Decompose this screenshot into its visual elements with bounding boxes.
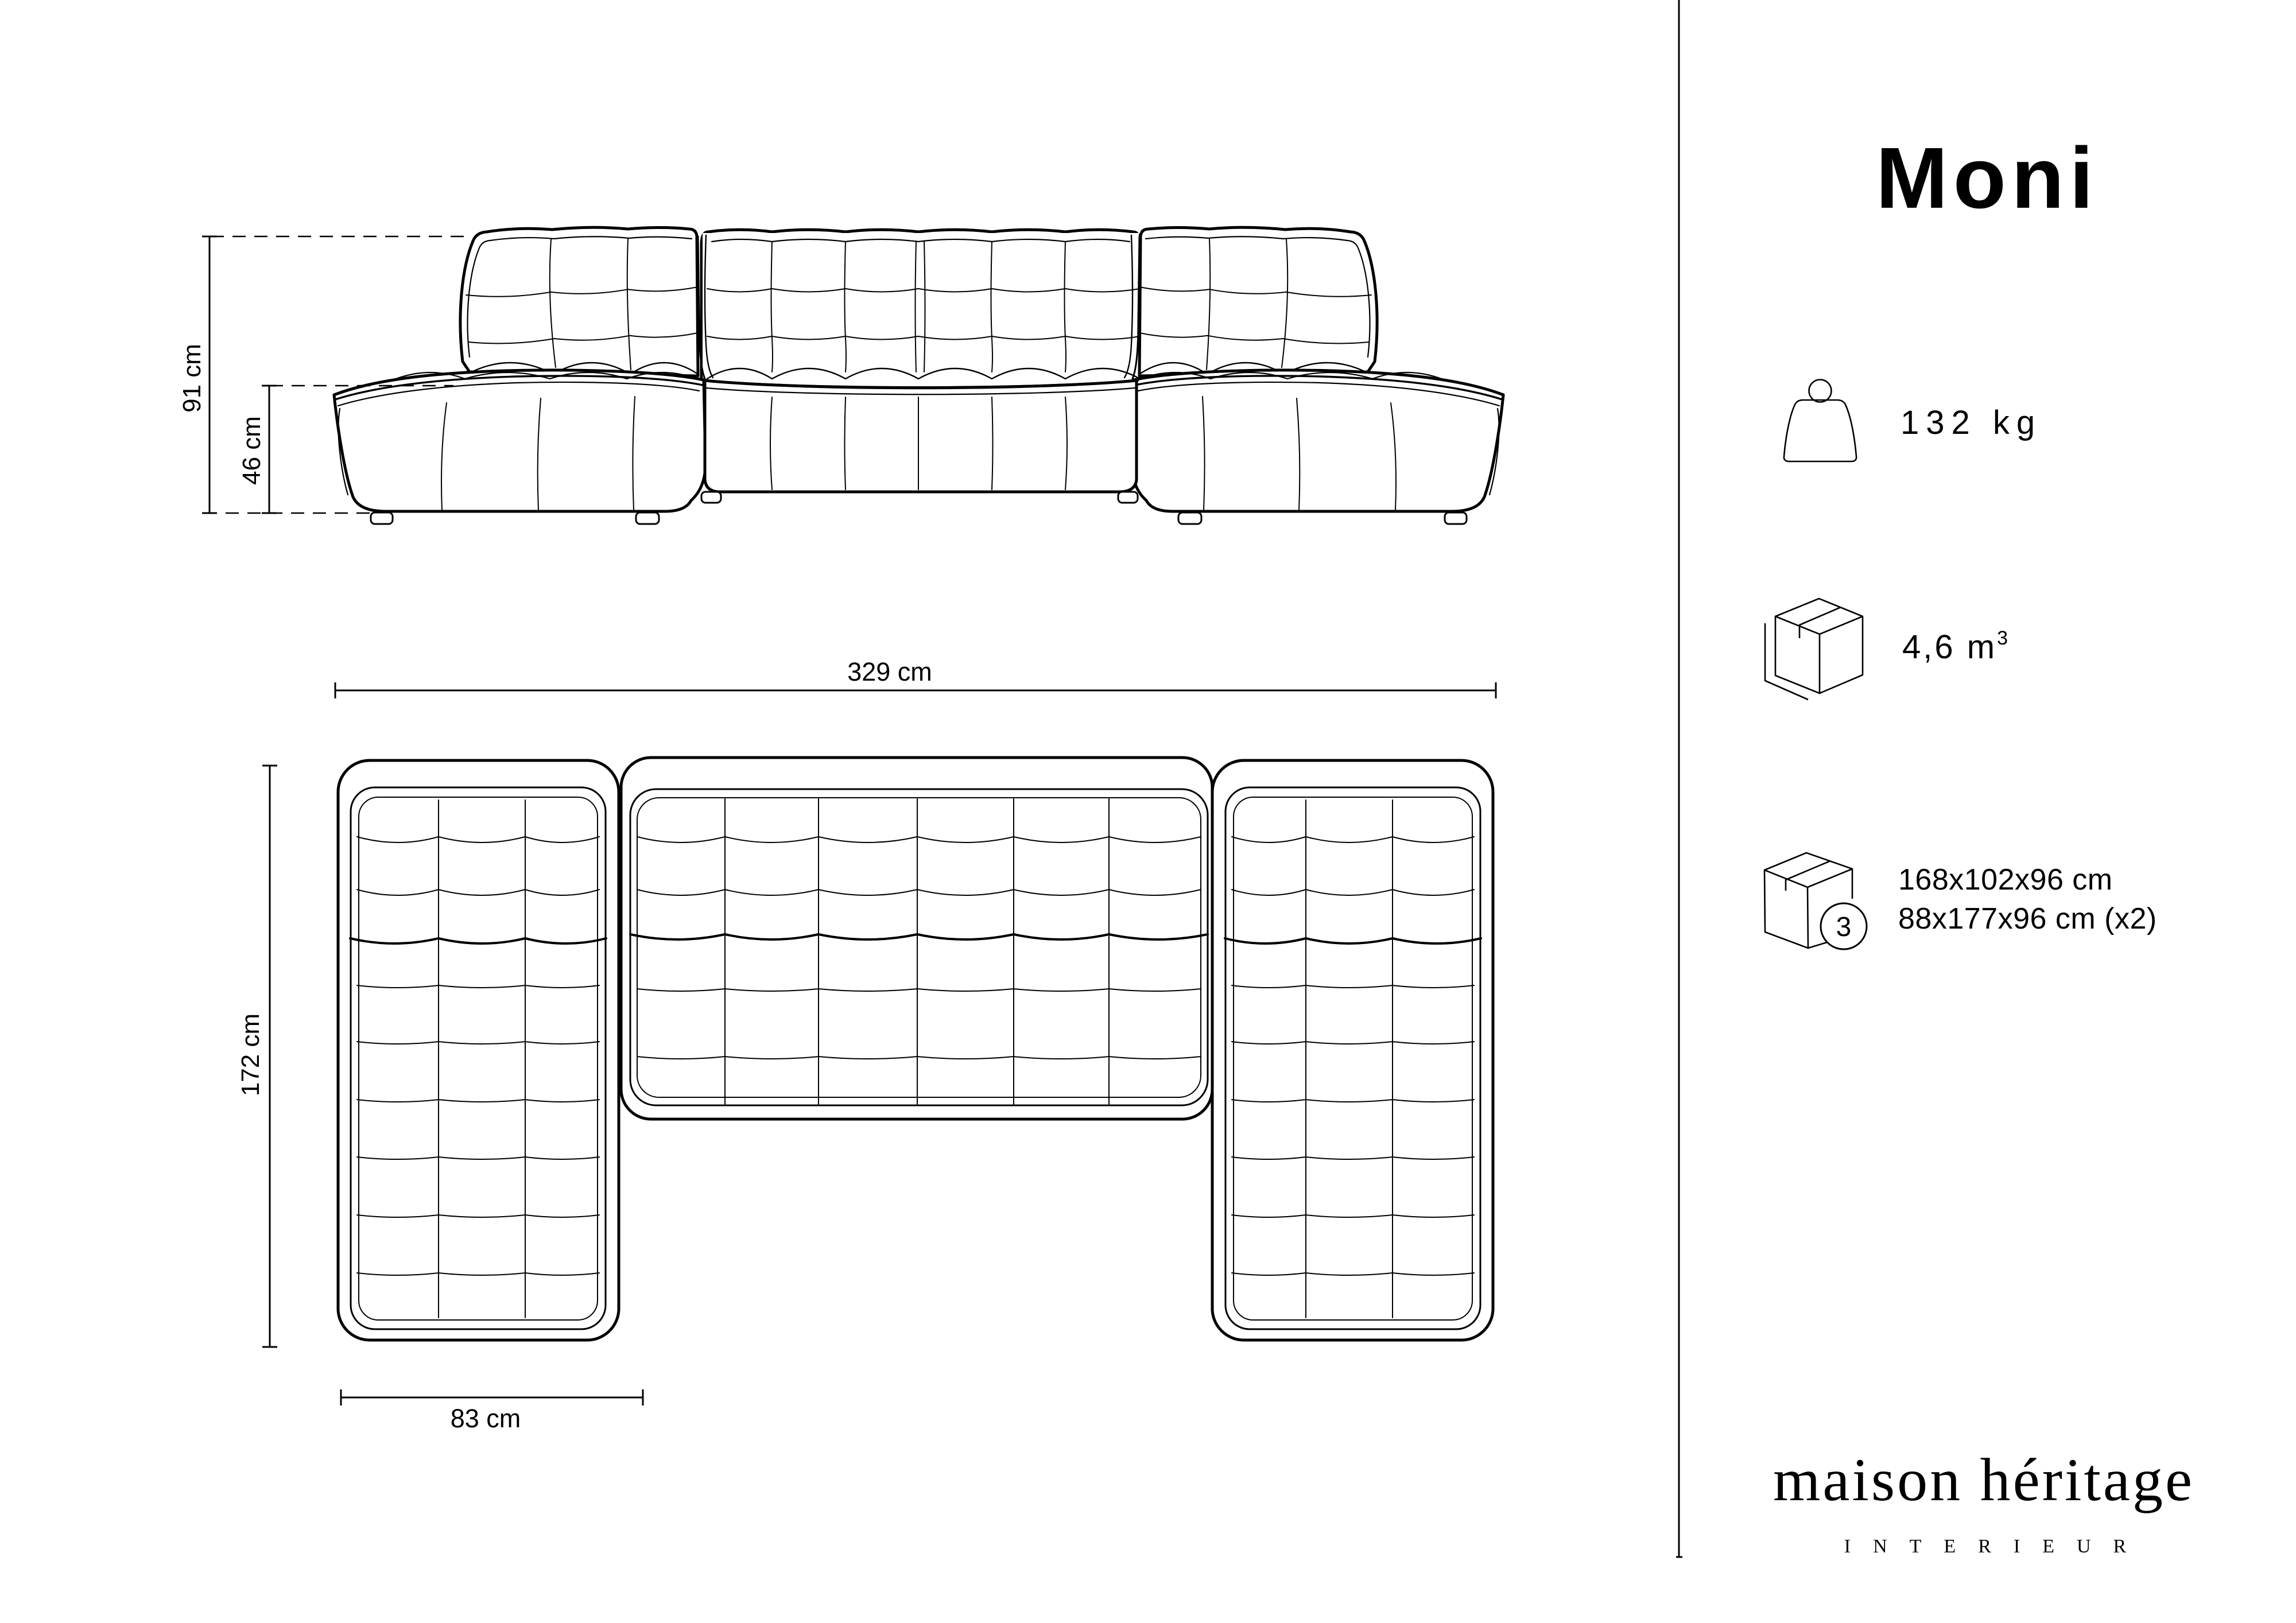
svg-text:Moni: Moni xyxy=(1876,129,2099,226)
svg-text:168x102x96 cm: 168x102x96 cm xyxy=(1898,863,2113,896)
svg-text:83 cm: 83 cm xyxy=(451,1404,521,1433)
svg-text:46 cm: 46 cm xyxy=(238,416,266,485)
svg-text:INTERIEUR: INTERIEUR xyxy=(1844,1536,2148,1557)
svg-text:4,6 m3: 4,6 m3 xyxy=(1902,627,2010,666)
svg-text:3: 3 xyxy=(1836,912,1852,942)
svg-text:88x177x96 cm (x2): 88x177x96 cm (x2) xyxy=(1898,902,2157,935)
svg-text:132 kg: 132 kg xyxy=(1901,404,2042,441)
svg-text:91 cm: 91 cm xyxy=(178,344,206,413)
svg-text:329 cm: 329 cm xyxy=(847,657,932,686)
svg-text:maison héritage: maison héritage xyxy=(1773,1446,2194,1513)
svg-text:172 cm: 172 cm xyxy=(236,1014,265,1096)
